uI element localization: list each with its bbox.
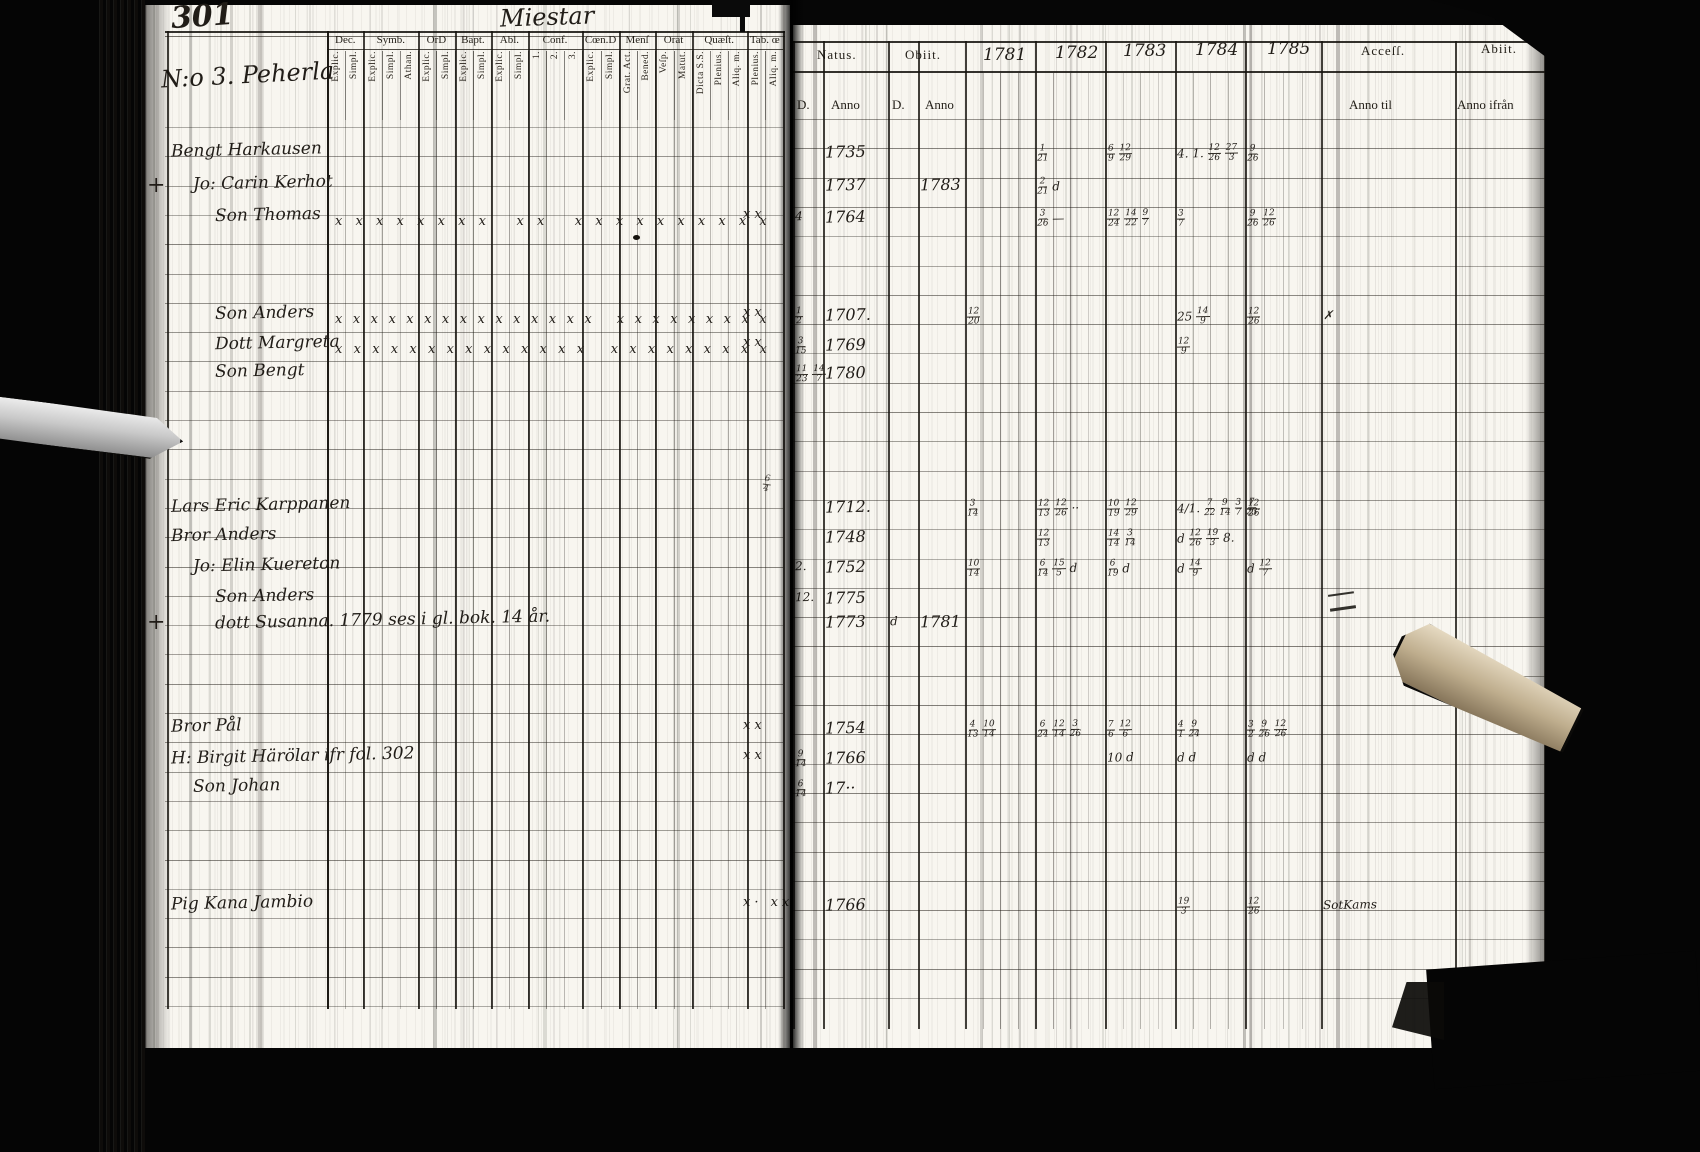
ledger-row-left: Son Bengt bbox=[145, 363, 790, 391]
cell-accessit: ✗ bbox=[1323, 306, 1457, 322]
scan-streak bbox=[511, 5, 512, 1050]
scan-streak bbox=[178, 5, 180, 1050]
x-mark: x bbox=[388, 312, 395, 327]
cell-natus: 1712. bbox=[825, 496, 890, 516]
scan-streak bbox=[805, 25, 806, 1048]
cell-y1781: 413 1014 bbox=[967, 719, 1037, 739]
x-mark: x bbox=[611, 342, 618, 357]
scan-streak bbox=[1008, 25, 1010, 1048]
scan-streak bbox=[1000, 25, 1001, 1048]
cell-y1783: 1414 314 bbox=[1107, 528, 1177, 548]
x-mark: x bbox=[478, 312, 485, 327]
scan-streak-heavy bbox=[760, 5, 762, 1050]
edge-marks: xx bbox=[743, 207, 766, 222]
x-mark: x bbox=[718, 214, 725, 229]
scan-streak bbox=[262, 5, 264, 1050]
row-name: H: Birgit Härölar ifr fol. 302 bbox=[171, 743, 415, 768]
cell-natus: 1707. bbox=[825, 304, 890, 324]
communion-marks: xxxxxxxxxxxxxx xxxxxxxxx bbox=[335, 337, 767, 357]
scan-streak bbox=[1462, 25, 1463, 1048]
cell-y1785: 32 926 1226 bbox=[1247, 719, 1323, 739]
ledger-row-left: +Jo: Carin Kerhot bbox=[145, 175, 790, 203]
scan-streak bbox=[334, 5, 336, 1050]
x-mark: x bbox=[685, 342, 692, 357]
scan-streak bbox=[473, 5, 474, 1050]
ledger-row-right: 173512169 12294. 1. 1226 273926 bbox=[793, 142, 1545, 170]
x-mark: x bbox=[577, 342, 584, 357]
cell-y1785: 926 1226 bbox=[1247, 208, 1323, 228]
ink-scribble bbox=[1328, 591, 1356, 611]
edge-marks: xx bbox=[743, 748, 766, 763]
scan-streak-heavy bbox=[813, 25, 817, 1048]
scan-streak bbox=[252, 5, 253, 1050]
x-mark: x bbox=[424, 312, 431, 327]
scan-streak bbox=[209, 5, 211, 1050]
scan-streak bbox=[1056, 25, 1057, 1048]
cell-obiit: 1781 bbox=[920, 612, 967, 632]
book-gutter bbox=[778, 0, 804, 1152]
cell-natus: 1748 bbox=[825, 526, 890, 546]
cell-natus: 1735 bbox=[825, 141, 890, 161]
scan-streak bbox=[639, 5, 640, 1050]
scan-streak bbox=[1102, 25, 1104, 1048]
x-mark: x bbox=[521, 342, 528, 357]
x-mark: x bbox=[409, 342, 416, 357]
scan-streak bbox=[1305, 25, 1306, 1048]
cell-natus: 1773 bbox=[825, 611, 890, 631]
scan-streak bbox=[454, 5, 456, 1050]
x-mark: x bbox=[704, 342, 711, 357]
scan-streak bbox=[1412, 25, 1414, 1048]
scan-streak bbox=[1367, 25, 1369, 1048]
communion-marks: xxxxxxxxxxxxxxx xxxxxxxxx bbox=[335, 307, 767, 327]
cell-y1783: 619 d bbox=[1107, 558, 1177, 578]
scan-streak-heavy bbox=[1336, 25, 1340, 1048]
x-mark: x bbox=[558, 342, 565, 357]
scan-streak-heavy bbox=[543, 5, 547, 1050]
scan-streak bbox=[1276, 25, 1277, 1048]
cell-y1784: 193 bbox=[1177, 896, 1247, 916]
ledger-row-right: 3151769129 bbox=[793, 335, 1545, 363]
scan-streak bbox=[1076, 25, 1078, 1048]
cell-y1784: 4/1. 722 914 37 723 bbox=[1177, 498, 1247, 518]
scan-streak bbox=[1354, 25, 1355, 1048]
x-mark: x bbox=[484, 342, 491, 357]
scan-streak bbox=[1485, 25, 1486, 1048]
cell-y1784: d 149 bbox=[1177, 558, 1247, 578]
x-mark: x bbox=[417, 214, 424, 229]
ledger-row-right: 61417·· bbox=[793, 778, 1545, 806]
cell-natus: 1766 bbox=[825, 747, 890, 767]
cell-natus: 1737 bbox=[825, 174, 890, 194]
scan-streak bbox=[865, 25, 867, 1048]
cell-y1785: d 127 bbox=[1247, 558, 1323, 578]
x-mark: x bbox=[406, 312, 413, 327]
x-mark: x bbox=[636, 214, 643, 229]
x-mark: x bbox=[567, 312, 574, 327]
scan-streak-heavy bbox=[1469, 25, 1471, 1048]
scan-streak bbox=[1465, 25, 1466, 1048]
scan-streak bbox=[1065, 25, 1067, 1048]
scan-border-bottom-right-wedge bbox=[1426, 951, 1700, 1090]
x-mark: x bbox=[657, 214, 664, 229]
ledger-row-right: 1754413 1014624 1214 32676 12641 92432 9… bbox=[793, 718, 1545, 746]
x-mark: x bbox=[698, 214, 705, 229]
right-rows: 173512169 12294. 1. 1226 273926173717832… bbox=[793, 25, 1545, 1048]
scan-streak bbox=[447, 5, 448, 1050]
scan-streak bbox=[736, 5, 737, 1050]
scan-streak bbox=[153, 5, 155, 1050]
scan-streak bbox=[609, 5, 610, 1050]
cell-y1785: d d bbox=[1247, 749, 1323, 764]
ledger-row-left: Bengt Harkausen bbox=[145, 142, 790, 170]
scan-streak bbox=[1500, 25, 1501, 1048]
cell-y1784: 25 149 bbox=[1177, 306, 1247, 326]
scan-streak bbox=[1034, 25, 1036, 1048]
scan-streak bbox=[369, 5, 371, 1050]
scan-streak-heavy bbox=[433, 5, 437, 1050]
x-mark: x bbox=[479, 214, 486, 229]
row-name: Dott Margreta bbox=[215, 332, 340, 355]
scan-streak bbox=[869, 25, 870, 1048]
cell-y1784: d d bbox=[1177, 749, 1247, 764]
scan-streak bbox=[1391, 25, 1392, 1048]
x-mark: x bbox=[353, 312, 360, 327]
cell-y1785: 1226 bbox=[1247, 306, 1323, 326]
scan-streak bbox=[587, 5, 589, 1050]
x-mark: x bbox=[354, 342, 361, 357]
scan-streak bbox=[673, 5, 674, 1050]
ledger-row-right: 174812131414 314d 1226 193 8. bbox=[793, 527, 1545, 555]
cell-natus: 1766 bbox=[825, 894, 890, 914]
ledger-row-left: Son Andersxxxxxxxxxxxxxxx xxxxxxxxxxx bbox=[145, 305, 790, 333]
cell-obiit: 1783 bbox=[920, 175, 967, 195]
x-mark: x bbox=[372, 342, 379, 357]
left-page: 301 Miestar N:o 3. Peherla Dec.Explic.Si… bbox=[145, 5, 790, 1050]
ledger-row-right: 914176610 dd dd d bbox=[793, 748, 1545, 776]
x-mark: x bbox=[722, 342, 729, 357]
scan-streak bbox=[886, 25, 887, 1048]
scan-streak bbox=[337, 5, 338, 1050]
scan-streak bbox=[1121, 25, 1123, 1048]
scan-streak bbox=[727, 5, 728, 1050]
scan-streak bbox=[1346, 25, 1348, 1048]
ledger-row-left: +dott Susanna. 1779 ses i gl. bok. 14 år… bbox=[145, 612, 790, 640]
scan-streak bbox=[1471, 25, 1473, 1048]
scan-streak-heavy bbox=[1249, 25, 1252, 1048]
ledger-row-right: 2.17521014614 155 d619 dd 149d 127 bbox=[793, 557, 1545, 585]
cell-y1783: 10 d bbox=[1107, 749, 1177, 764]
scan-streak bbox=[1327, 25, 1328, 1048]
cell-natus: 1775 bbox=[825, 587, 890, 607]
mark-gap bbox=[557, 214, 561, 229]
scan-streak bbox=[1315, 25, 1316, 1048]
scan-streak bbox=[496, 5, 498, 1050]
ledger-row-right: 17371783221 d bbox=[793, 175, 1545, 203]
scan-streak bbox=[1227, 25, 1228, 1048]
ledger-row-left: Bror Anders bbox=[145, 527, 790, 555]
cell-y1783: 69 1229 bbox=[1107, 143, 1177, 163]
scan-streak bbox=[1131, 25, 1133, 1048]
cell-accessit: SotKams bbox=[1323, 896, 1457, 912]
cell-y1784: 129 bbox=[1177, 336, 1247, 356]
scan-streak bbox=[466, 5, 467, 1050]
scan-streak bbox=[876, 25, 878, 1048]
scan-streak bbox=[1389, 25, 1390, 1048]
edge-marks: xx bbox=[743, 305, 766, 320]
scan-streak bbox=[1007, 25, 1008, 1048]
ledger-row-right: 1712.3141213 1226 ··1019 12294/1. 722 91… bbox=[793, 497, 1545, 525]
x-mark: x bbox=[513, 312, 520, 327]
scan-streak bbox=[1048, 25, 1050, 1048]
row-name: Pig Kana Jambio bbox=[171, 892, 313, 915]
scan-streak bbox=[992, 25, 993, 1048]
x-mark: x bbox=[502, 342, 509, 357]
cell-natus: 1752 bbox=[825, 556, 890, 576]
x-mark: x bbox=[648, 342, 655, 357]
ledger-row-left: Jo: Elin Kuereton bbox=[145, 557, 790, 585]
x-mark: x bbox=[371, 312, 378, 327]
communion-marks: xxxxxxxx xx xxxxxxxxxx bbox=[335, 209, 767, 229]
spine-texture bbox=[96, 0, 146, 1152]
scan-streak-heavy bbox=[189, 5, 192, 1050]
cell-y1784: 41 924 bbox=[1177, 719, 1247, 739]
mark-gap bbox=[595, 342, 599, 357]
cell-y1784: 4. 1. 1226 273 bbox=[1177, 143, 1247, 163]
scan-streak bbox=[1348, 25, 1350, 1048]
scan-streak bbox=[381, 5, 383, 1050]
cell-y1781: 1220 bbox=[967, 306, 1037, 326]
x-mark: x bbox=[629, 342, 636, 357]
scan-streak bbox=[1070, 25, 1072, 1048]
ledger-row-left: Son Johan bbox=[145, 778, 790, 806]
scan-streak bbox=[158, 5, 159, 1050]
ledger-row-left: Bror Pålxx bbox=[145, 718, 790, 746]
x-mark: x bbox=[595, 214, 602, 229]
x-mark: x bbox=[575, 214, 582, 229]
ledger-row-right: 17661931226SotKams bbox=[793, 895, 1545, 923]
scan-streak bbox=[861, 25, 863, 1048]
scan-streak-heavy bbox=[1019, 25, 1021, 1048]
x-mark: x bbox=[516, 214, 523, 229]
scan-streak bbox=[469, 5, 470, 1050]
x-mark: x bbox=[706, 312, 713, 327]
scan-streak bbox=[1381, 25, 1382, 1048]
scan-streak-heavy bbox=[230, 5, 233, 1050]
x-mark: x bbox=[652, 312, 659, 327]
cell-y1784: d 1226 193 8. bbox=[1177, 528, 1247, 548]
scan-streak bbox=[553, 5, 555, 1050]
cell-y1785: 1226 bbox=[1247, 498, 1323, 518]
x-mark: x bbox=[617, 312, 624, 327]
bookmark-notch-tail bbox=[740, 0, 745, 32]
row-name: Jo: Elin Kuereton bbox=[193, 553, 341, 576]
scan-streak bbox=[156, 5, 158, 1050]
scan-streak bbox=[220, 5, 222, 1050]
scan-streak-heavy bbox=[258, 5, 262, 1050]
scan-streak-heavy bbox=[1243, 25, 1246, 1048]
x-mark: x bbox=[616, 214, 623, 229]
cell-natus: 1769 bbox=[825, 334, 890, 354]
cell-y1783: 76 126 bbox=[1107, 719, 1177, 739]
scan-streak bbox=[696, 5, 697, 1050]
cell-y1783: 1019 1229 bbox=[1107, 498, 1177, 518]
ledger-row-right: 121707.122025 1491226✗ bbox=[793, 305, 1545, 333]
ledger-row-right: 41764326 —1224 1422 9737926 1226 bbox=[793, 207, 1545, 235]
scan-streak bbox=[1308, 25, 1309, 1048]
cell-y1781: 1014 bbox=[967, 558, 1037, 578]
scan-streak bbox=[769, 5, 771, 1050]
cell-y1785: 926 bbox=[1247, 143, 1323, 163]
ledger-row-left: H: Birgit Härölar ifr fol. 302xx bbox=[145, 748, 790, 776]
scan-streak bbox=[1105, 25, 1106, 1048]
x-mark: x bbox=[397, 214, 404, 229]
cell-y1785: 1226 bbox=[1247, 896, 1323, 916]
scan-streak-heavy bbox=[677, 5, 680, 1050]
scan-streak bbox=[1375, 25, 1376, 1048]
x-mark: x bbox=[442, 312, 449, 327]
ledger-row-right: 1123 1471780 bbox=[793, 363, 1545, 391]
scan-streak bbox=[690, 5, 691, 1050]
scan-streak bbox=[1192, 25, 1193, 1048]
x-mark: x bbox=[356, 214, 363, 229]
ledger-row-left: Lars Eric Karppanen bbox=[145, 497, 790, 525]
edge-marks: xx bbox=[743, 718, 766, 733]
right-page: Natus. D. Anno Obiit. D. Anno 1781 1782 … bbox=[793, 25, 1545, 1048]
scan-streak bbox=[295, 5, 296, 1050]
row-name: Son Johan bbox=[193, 775, 281, 797]
cell-obiit-d: d bbox=[890, 614, 920, 629]
mark-gap bbox=[602, 312, 606, 327]
x-mark: x bbox=[438, 214, 445, 229]
cell-natus: 1754 bbox=[825, 717, 890, 737]
scan-streak bbox=[309, 5, 311, 1050]
left-rows: Bengt Harkausen+Jo: Carin KerhotSon Thom… bbox=[145, 5, 790, 1050]
scan-streak bbox=[538, 5, 539, 1050]
edge-marks: xx bbox=[743, 335, 766, 350]
x-mark: x bbox=[391, 342, 398, 357]
scan-streak bbox=[1493, 25, 1495, 1048]
scan-streak bbox=[1288, 25, 1290, 1048]
scan-streak bbox=[1149, 25, 1150, 1048]
scan-streak bbox=[1393, 25, 1394, 1048]
scan-streak bbox=[462, 5, 464, 1050]
scan-streak bbox=[843, 25, 845, 1048]
scan-streak bbox=[1261, 25, 1263, 1048]
ledger-row-left: Pig Kana Jambiox· xx bbox=[145, 895, 790, 923]
mark-gap bbox=[499, 214, 503, 229]
cell-y1784: 37 bbox=[1177, 208, 1247, 228]
scan-streak bbox=[1487, 25, 1488, 1048]
cell-natus: 1780 bbox=[825, 362, 890, 382]
ledger-row-left: Son Thomasxxxxxxxx xx xxxxxxxxxxxx bbox=[145, 207, 790, 235]
scan-streak bbox=[1011, 25, 1013, 1048]
row-name: Bengt Harkausen bbox=[171, 138, 322, 161]
ledger-row-left: Dott Margretaxxxxxxxxxxxxxx xxxxxxxxxxx bbox=[145, 335, 790, 363]
scan-streak bbox=[1319, 25, 1321, 1048]
cell-natus: 17·· bbox=[825, 777, 890, 797]
cell-y1781: 314 bbox=[967, 498, 1037, 518]
scan-streak-heavy bbox=[980, 25, 983, 1048]
cell-y1783: 1224 1422 97 bbox=[1107, 208, 1177, 228]
scan-streak bbox=[629, 5, 630, 1050]
scan-streak bbox=[249, 5, 251, 1050]
scan-streak bbox=[312, 5, 314, 1050]
cell-natus: 1764 bbox=[825, 206, 890, 226]
book-scan: 301 Miestar N:o 3. Peherla Dec.Explic.Si… bbox=[0, 0, 1700, 1152]
